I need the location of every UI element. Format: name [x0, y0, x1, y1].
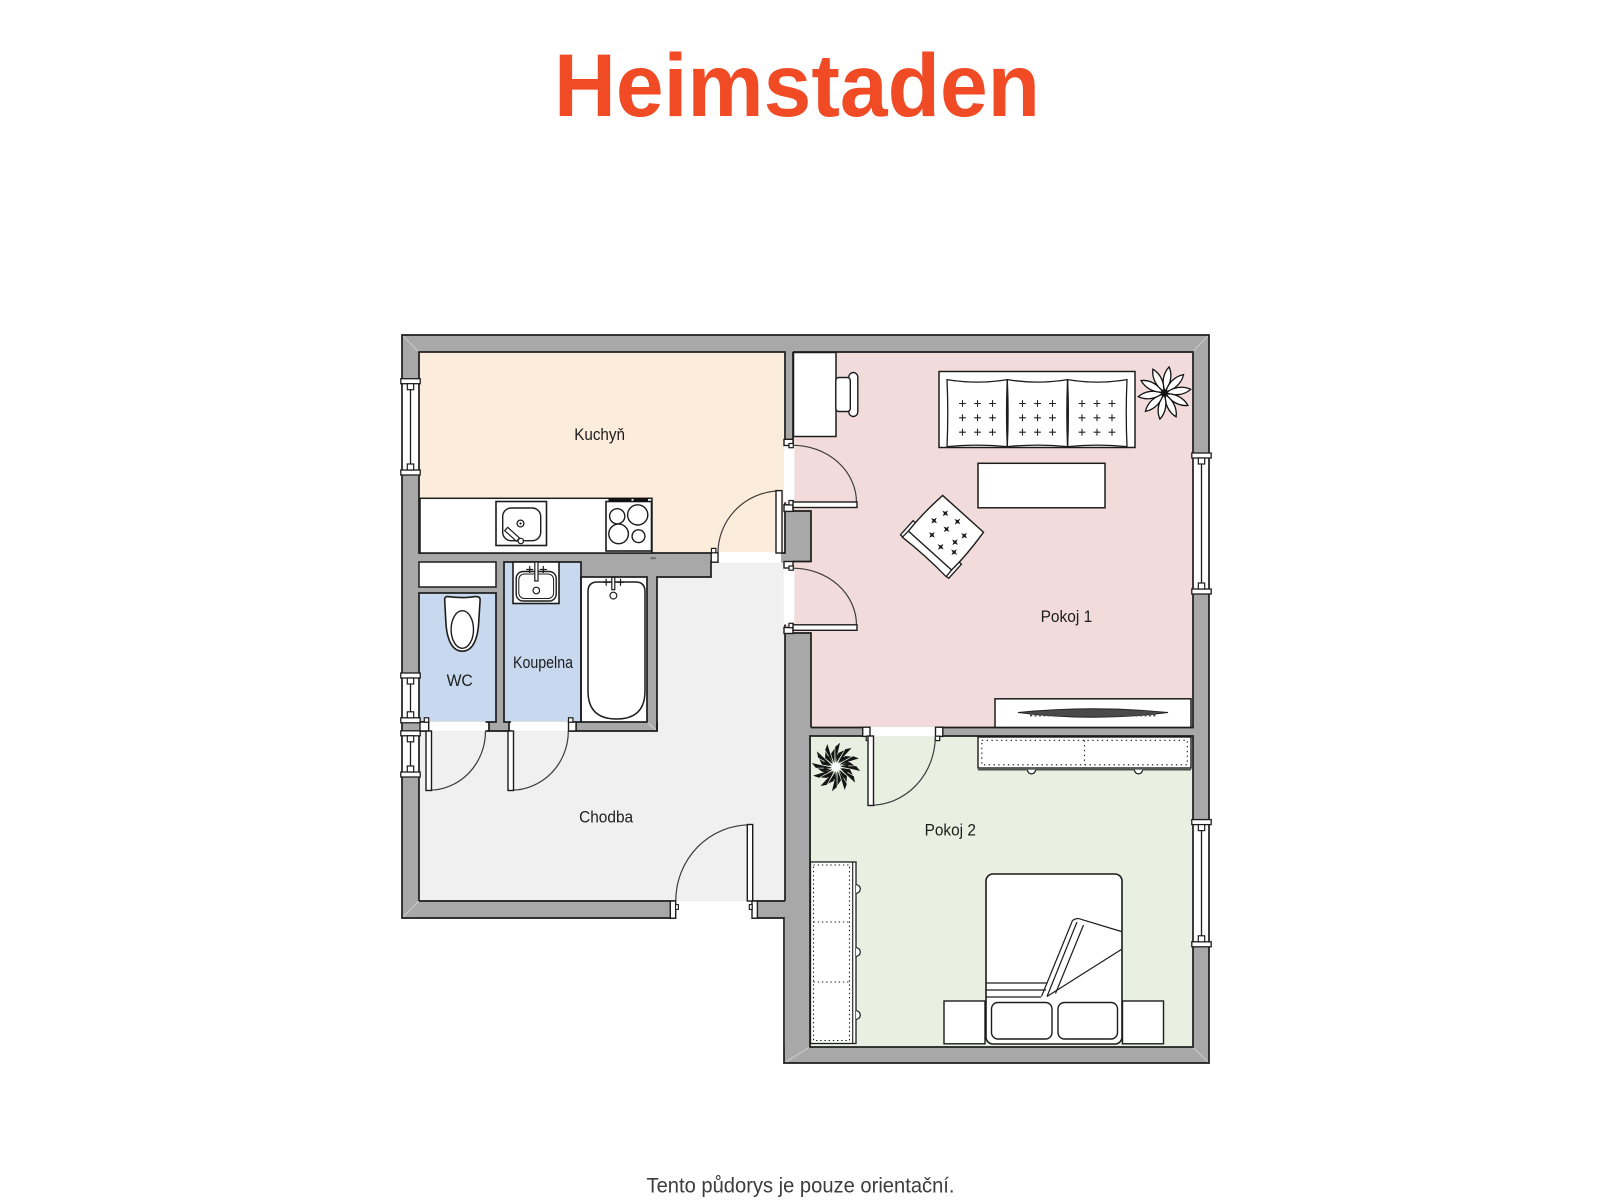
svg-text:Pokoj 2: Pokoj 2 [925, 821, 976, 840]
svg-text:Heimstaden: Heimstaden [554, 35, 1040, 135]
svg-text:Kuchyň: Kuchyň [574, 425, 625, 444]
svg-text:Koupelna: Koupelna [513, 653, 574, 672]
svg-text:Tento půdorys je pouze orienta: Tento půdorys je pouze orientační. [647, 1175, 955, 1198]
svg-text:WC: WC [447, 671, 473, 690]
svg-text:Chodba: Chodba [579, 807, 634, 826]
svg-text:Pokoj 1: Pokoj 1 [1041, 607, 1093, 626]
